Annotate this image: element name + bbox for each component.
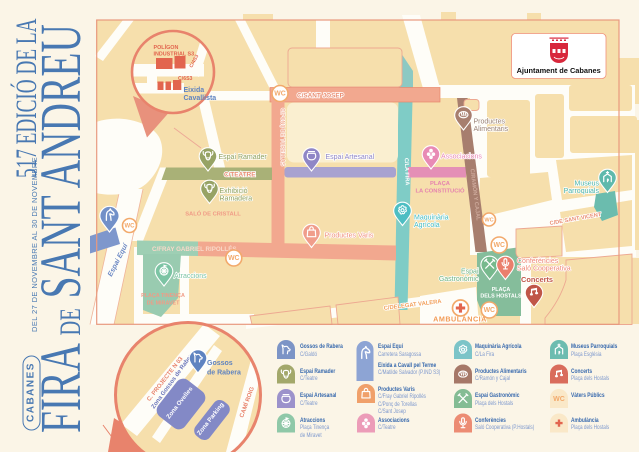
- svg-text:WC: WC: [124, 224, 135, 230]
- svg-text:Atraccions: Atraccions: [174, 273, 207, 280]
- svg-text:Associacions: Associacions: [441, 154, 482, 161]
- svg-text:WC: WC: [484, 218, 493, 224]
- svg-text:Museus: Museus: [574, 181, 599, 188]
- svg-text:C/LA FIRA: C/LA FIRA: [403, 158, 410, 186]
- svg-text:Eixida: Eixida: [184, 87, 205, 94]
- svg-text:DELS HOSTALS: DELS HOSTALS: [480, 294, 522, 300]
- svg-text:Gossos: Gossos: [207, 360, 233, 367]
- svg-text:Espai: Espai: [461, 269, 479, 276]
- svg-text:Exhibició: Exhibició: [220, 188, 248, 195]
- svg-text:C/6S3: C/6S3: [178, 76, 193, 82]
- svg-text:Productes: Productes: [474, 119, 506, 126]
- svg-text:LA CONSTITUCIÓ: LA CONSTITUCIÓ: [415, 186, 465, 194]
- svg-text:WC: WC: [493, 242, 504, 249]
- svg-text:C/SANT JOSEP: C/SANT JOSEP: [297, 93, 345, 100]
- svg-text:C/PONÇ DE TORELLAS: C/PONÇ DE TORELLAS: [279, 108, 285, 167]
- svg-text:Espai Artesanal: Espai Artesanal: [326, 154, 375, 161]
- svg-text:Ramadera: Ramadera: [220, 196, 253, 203]
- svg-text:PLAÇA: PLAÇA: [430, 181, 451, 187]
- svg-text:de Rabera: de Rabera: [207, 370, 241, 377]
- svg-text:DE MIRAVET: DE MIRAVET: [147, 301, 181, 307]
- svg-text:PLAÇA: PLAÇA: [492, 287, 511, 293]
- svg-text:Ajuntament de Cabanes: Ajuntament de Cabanes: [517, 66, 601, 75]
- svg-text:Concerts: Concerts: [521, 275, 553, 284]
- svg-text:WC: WC: [484, 307, 495, 314]
- svg-text:Gastronòmic: Gastronòmic: [439, 276, 479, 283]
- svg-text:WC: WC: [553, 396, 565, 403]
- svg-text:Alimentaris: Alimentaris: [474, 126, 509, 133]
- svg-text:Agrícola: Agrícola: [414, 222, 440, 229]
- svg-text:C/TEATRE: C/TEATRE: [224, 171, 256, 178]
- svg-text:Conferències: Conferències: [517, 258, 559, 265]
- svg-text:Saló Cooperativa: Saló Cooperativa: [517, 266, 571, 273]
- svg-text:INDUSTRIAL S3: INDUSTRIAL S3: [154, 52, 195, 58]
- svg-text:POLÍGON: POLÍGON: [154, 43, 179, 51]
- svg-text:Espai Ramader: Espai Ramader: [219, 154, 268, 161]
- svg-text:WC: WC: [274, 91, 285, 98]
- svg-text:Parroquials: Parroquials: [564, 188, 600, 195]
- svg-text:C/FRAY GABRIEL RIPOLLÉS: C/FRAY GABRIEL RIPOLLÉS: [152, 245, 236, 253]
- svg-text:PLAÇA TINENÇA: PLAÇA TINENÇA: [141, 293, 185, 299]
- svg-text:Maquinària: Maquinària: [414, 215, 449, 222]
- svg-text:Cavallista: Cavallista: [184, 95, 217, 102]
- svg-text:Productes Varis: Productes Varis: [325, 233, 374, 240]
- svg-text:WC: WC: [228, 255, 239, 262]
- svg-text:SALÓ DE CRISTALL: SALÓ DE CRISTALL: [185, 210, 241, 218]
